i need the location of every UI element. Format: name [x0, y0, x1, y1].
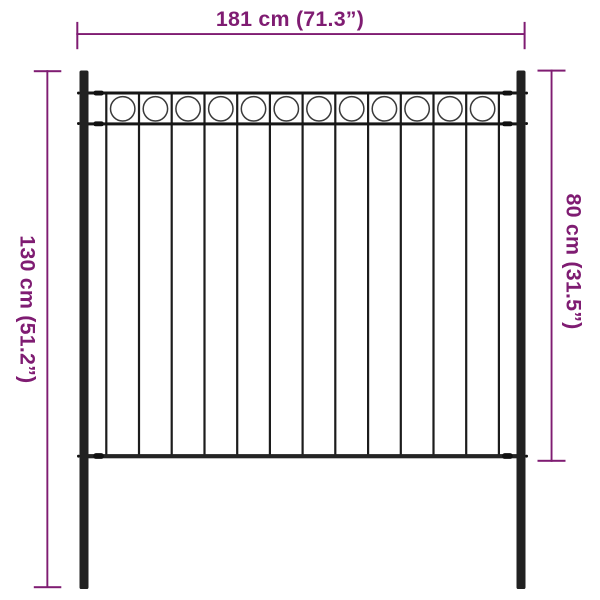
- svg-text:130 cm (51.2”): 130 cm (51.2”): [15, 235, 39, 383]
- svg-text:80 cm (31.5”): 80 cm (31.5”): [562, 193, 586, 329]
- svg-text:181 cm (71.3”): 181 cm (71.3”): [216, 7, 364, 31]
